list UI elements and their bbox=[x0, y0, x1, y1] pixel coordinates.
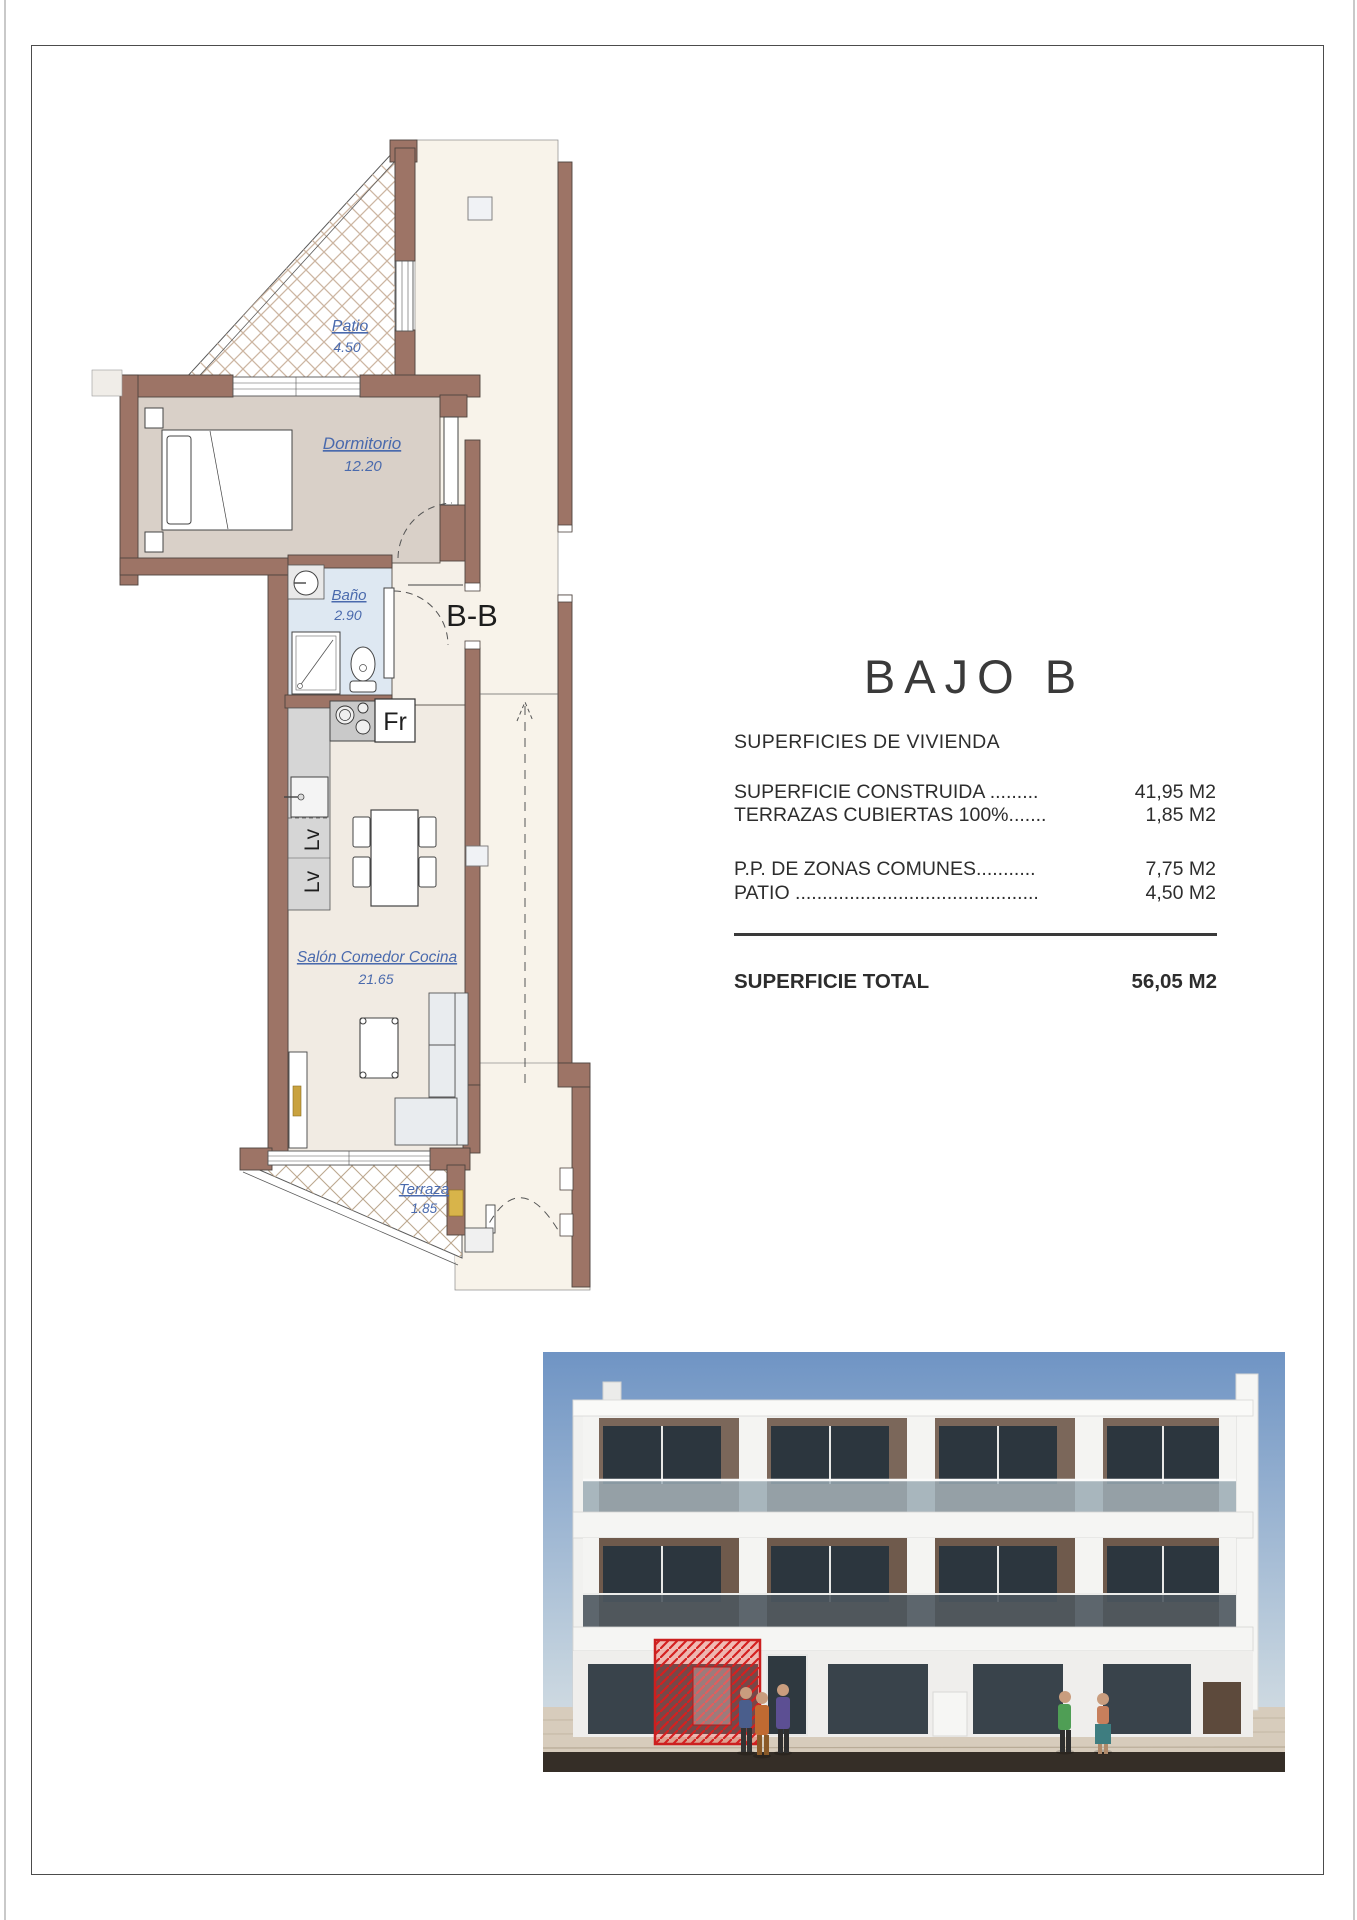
terraza-door-panel bbox=[449, 1190, 463, 1216]
row-value: 1,85 M2 bbox=[1146, 804, 1216, 827]
table-row: PATIO ..................................… bbox=[734, 882, 1216, 905]
dining-table bbox=[371, 810, 418, 906]
exterior-step bbox=[92, 370, 122, 396]
window-dormitorio-patio bbox=[233, 377, 360, 396]
page-edge-right bbox=[1353, 0, 1355, 1920]
kitchen-sink bbox=[284, 777, 328, 817]
column bbox=[468, 197, 492, 220]
stove bbox=[330, 701, 375, 741]
slab-2 bbox=[573, 1512, 1253, 1538]
area-dormitorio: 12.20 bbox=[344, 458, 382, 475]
section-label: B-B bbox=[446, 598, 498, 633]
coffee-table bbox=[360, 1018, 398, 1078]
window-patio-right bbox=[396, 261, 413, 331]
row-gap bbox=[734, 827, 1216, 858]
glass-railing bbox=[583, 1594, 1236, 1627]
area-table: SUPERFICIE CONSTRUIDA ......... 41,95 M2… bbox=[734, 781, 1216, 905]
row-value: 7,75 M2 bbox=[1146, 858, 1216, 881]
total-divider bbox=[734, 933, 1217, 936]
road bbox=[543, 1752, 1285, 1772]
label-salon: Salón Comedor Cocina bbox=[297, 949, 458, 966]
label-dormitorio: Dormitorio bbox=[323, 434, 401, 453]
side-panel bbox=[1203, 1682, 1241, 1734]
chair bbox=[419, 817, 436, 847]
building bbox=[573, 1374, 1258, 1744]
glass-railing bbox=[583, 1480, 1236, 1512]
row-label: PATIO ..................................… bbox=[734, 882, 1039, 905]
row-value: 41,95 M2 bbox=[1135, 781, 1216, 804]
area-patio: 4.50 bbox=[333, 339, 360, 355]
area-terraza: 1.85 bbox=[411, 1201, 438, 1216]
shower bbox=[292, 632, 340, 694]
label-patio: Patio bbox=[332, 318, 369, 335]
middle-floor bbox=[583, 1538, 1236, 1627]
toilet bbox=[350, 647, 376, 692]
row-label: TERRAZAS CUBIERTAS 100%....... bbox=[734, 804, 1046, 827]
area-bano: 2.90 bbox=[333, 607, 361, 623]
appliance-label-1: Lv bbox=[301, 828, 324, 851]
floor-plan: Fr Lv Lv bbox=[80, 125, 600, 1370]
row-label: P.P. DE ZONAS COMUNES........... bbox=[734, 858, 1036, 881]
row-value: 4,50 M2 bbox=[1146, 882, 1216, 905]
chair bbox=[353, 817, 370, 847]
window-salon-terraza bbox=[268, 1151, 430, 1165]
row-label: SUPERFICIE CONSTRUIDA ......... bbox=[734, 781, 1038, 804]
page-edge-left bbox=[4, 0, 6, 1920]
chair bbox=[353, 857, 370, 887]
tv-unit bbox=[289, 1052, 307, 1148]
page-title: BAJO B bbox=[733, 649, 1216, 704]
table-row: P.P. DE ZONAS COMUNES........... 7,75 M2 bbox=[734, 858, 1216, 881]
label-terraza: Terraza bbox=[399, 1181, 449, 1198]
roof-parapet bbox=[573, 1400, 1253, 1416]
chair bbox=[419, 857, 436, 887]
area-salon: 21.65 bbox=[357, 971, 393, 987]
entry-landing bbox=[465, 1228, 493, 1252]
table-row: SUPERFICIE CONSTRUIDA ......... 41,95 M2 bbox=[734, 781, 1216, 804]
appliance-label-2: Lv bbox=[301, 870, 324, 893]
building-render bbox=[543, 1352, 1285, 1772]
fridge-label: Fr bbox=[383, 708, 407, 736]
tv bbox=[293, 1086, 301, 1116]
total-row: SUPERFICIE TOTAL 56,05 M2 bbox=[734, 970, 1217, 994]
summary-subtitle: SUPERFICIES DE VIVIENDA bbox=[734, 731, 1000, 754]
utility-box bbox=[466, 846, 488, 866]
table-row: TERRAZAS CUBIERTAS 100%....... 1,85 M2 bbox=[734, 804, 1216, 827]
label-bano: Baño bbox=[331, 587, 366, 604]
total-label: SUPERFICIE TOTAL bbox=[734, 970, 929, 994]
brochure-page: { "document": { "title": "BAJO B", "subt… bbox=[0, 0, 1357, 1920]
bed bbox=[145, 408, 292, 552]
total-value: 56,05 M2 bbox=[1132, 970, 1217, 994]
